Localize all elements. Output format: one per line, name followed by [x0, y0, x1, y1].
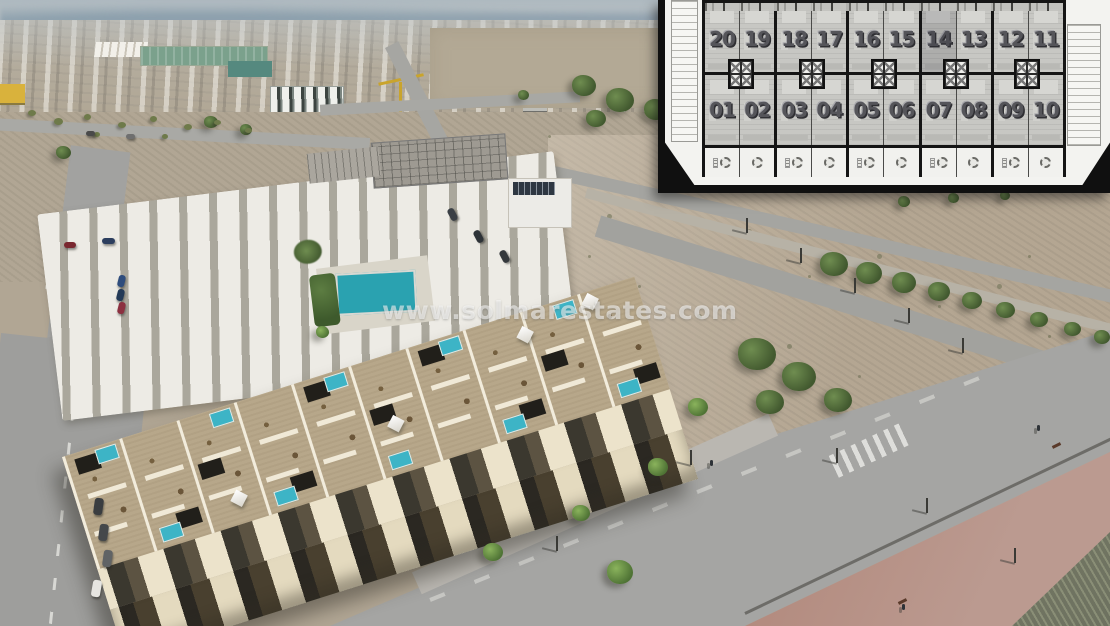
tree — [856, 262, 882, 284]
unit-number: 17 — [816, 27, 842, 51]
tree — [756, 390, 784, 414]
street-lamp — [908, 308, 910, 323]
terrace-cell — [811, 148, 846, 177]
bush — [162, 134, 168, 139]
tree — [316, 326, 329, 338]
terrace-cell — [1028, 148, 1063, 177]
unit-number: 20 — [709, 27, 735, 51]
tree — [1094, 330, 1110, 344]
tree — [898, 196, 910, 207]
street-tree — [607, 560, 633, 584]
stairs-icon — [785, 158, 790, 168]
tree — [782, 362, 816, 391]
unit-number: 13 — [961, 27, 987, 51]
unit-number: 11 — [1033, 27, 1059, 51]
street-tree — [483, 543, 503, 561]
tree — [586, 110, 606, 127]
street-lamp — [836, 448, 838, 463]
plant-icon — [792, 157, 803, 168]
street-tree — [648, 458, 668, 476]
bush — [214, 120, 221, 125]
tree — [996, 302, 1015, 318]
pedestrian — [1037, 425, 1040, 431]
unit-number: 03 — [781, 98, 807, 122]
unit-number: 18 — [781, 27, 807, 51]
terrace-cell — [883, 148, 918, 177]
terrace-cell — [774, 148, 811, 177]
car — [102, 238, 115, 244]
terrace-cell — [739, 148, 774, 177]
plant-icon — [1040, 157, 1051, 168]
plant-icon — [824, 157, 835, 168]
unit-number: 05 — [854, 98, 880, 122]
car — [64, 242, 76, 248]
unit-number: 19 — [744, 27, 770, 51]
tree — [738, 338, 776, 370]
tree — [1030, 312, 1048, 327]
street-lamp — [926, 498, 928, 513]
yellow-building — [0, 84, 25, 105]
plant-icon — [1009, 157, 1020, 168]
street-lamp — [854, 278, 856, 293]
street-lamp — [690, 450, 692, 465]
bush — [184, 124, 192, 130]
tree — [928, 282, 950, 301]
street-lamp — [1014, 548, 1016, 563]
terrace-cell — [919, 148, 956, 177]
stairwell-hatch — [871, 59, 897, 89]
unit-number: 12 — [998, 27, 1024, 51]
street-lamp — [800, 248, 802, 263]
unit-number: 10 — [1033, 98, 1059, 122]
plan-terrace-strip — [702, 148, 1066, 177]
plant-icon — [968, 157, 979, 168]
site-plan-overlay: 20 19 18 17 16 15 14 13 12 11 01 02 03 0… — [658, 0, 1110, 193]
site-plan: 20 19 18 17 16 15 14 13 12 11 01 02 03 0… — [665, 0, 1110, 185]
terrace-cell — [956, 148, 991, 177]
plant-icon — [752, 157, 763, 168]
greenhouse — [228, 61, 272, 77]
stairwell-hatch — [728, 59, 754, 89]
street-lamp — [962, 338, 964, 353]
stairwell-hatch — [1014, 59, 1040, 89]
street-tree — [572, 505, 590, 521]
bush — [54, 118, 63, 125]
pedestrian — [710, 460, 713, 466]
terrace-cell — [991, 148, 1028, 177]
stairs-icon — [1002, 158, 1007, 168]
bush — [118, 122, 126, 128]
tree — [572, 75, 596, 96]
tree — [948, 193, 959, 203]
bush — [28, 110, 36, 116]
tree — [824, 388, 852, 412]
tree — [1064, 322, 1081, 336]
unit-number: 07 — [926, 98, 952, 122]
tree — [606, 88, 634, 112]
unit-number: 08 — [961, 98, 987, 122]
unit-number: 15 — [889, 27, 915, 51]
tree — [820, 252, 848, 276]
bush — [245, 128, 252, 133]
stairs-icon — [857, 158, 862, 168]
street-lamp — [556, 536, 558, 551]
bush — [150, 116, 157, 122]
unit-number: 14 — [926, 27, 952, 51]
plant-icon — [720, 157, 731, 168]
plan-stairs-strip-left — [671, 0, 698, 142]
pedestrian — [902, 604, 905, 610]
tree — [56, 146, 71, 159]
unit-number: 01 — [709, 98, 735, 122]
plan-cropped-row — [705, 3, 1063, 11]
plant-icon — [937, 157, 948, 168]
unit-number: 02 — [744, 98, 770, 122]
car — [126, 134, 135, 139]
unit-number: 04 — [816, 98, 842, 122]
unit-number: 06 — [889, 98, 915, 122]
stairwell-hatch — [943, 59, 969, 89]
stairwell-hatch — [799, 59, 825, 89]
tree — [518, 90, 529, 100]
unit-number: 16 — [854, 27, 880, 51]
scrub-vegetation — [548, 135, 551, 138]
terrace-cell — [705, 148, 739, 177]
unit-number: 09 — [998, 98, 1024, 122]
street-lamp — [746, 218, 748, 233]
plan-stairs-strip-right — [1067, 24, 1101, 146]
tree — [962, 292, 982, 309]
street-tree — [688, 398, 708, 416]
white-building-solar-panels — [508, 178, 572, 228]
listing-aerial-image: www.solmarestates.com 20 19 18 17 16 15 … — [0, 0, 1110, 626]
solar-panels — [513, 182, 555, 195]
palm-tree — [292, 238, 323, 265]
plant-icon — [864, 157, 875, 168]
stairs-icon — [930, 158, 935, 168]
watermark: www.solmarestates.com — [382, 296, 728, 325]
plant-icon — [896, 157, 907, 168]
terrace-cell — [846, 148, 883, 177]
car — [86, 131, 95, 136]
construction-site — [371, 133, 509, 188]
stairs-icon — [713, 158, 718, 168]
bush — [84, 114, 91, 120]
tree — [892, 272, 916, 293]
